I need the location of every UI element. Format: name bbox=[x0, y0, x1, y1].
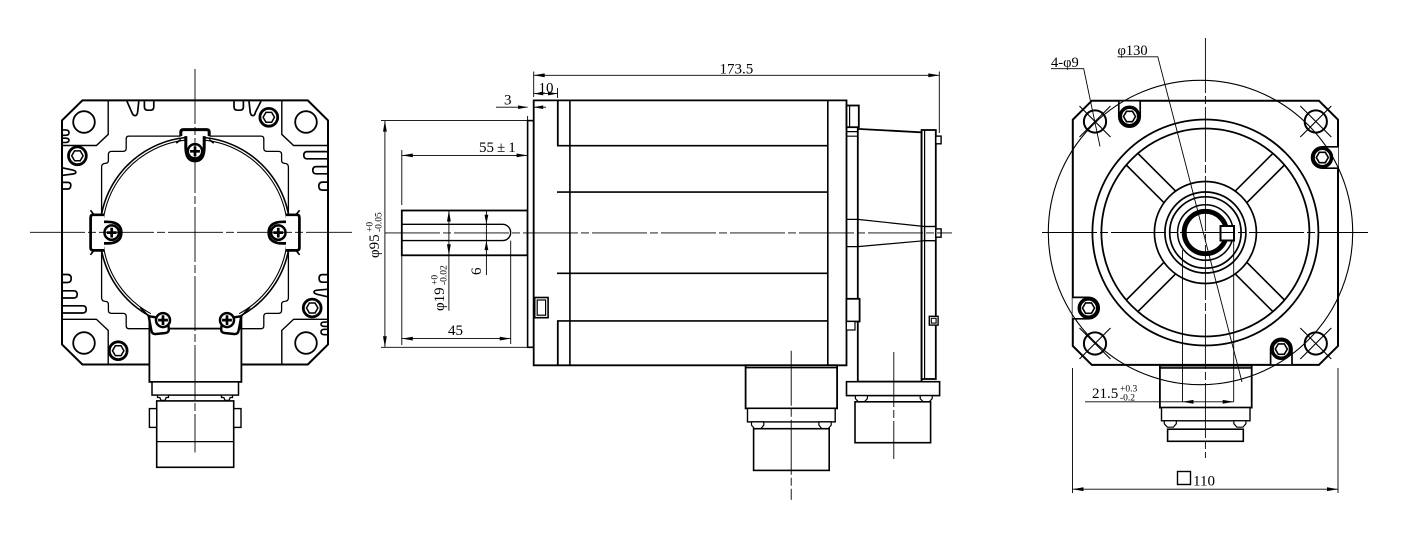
svg-text:45: 45 bbox=[448, 323, 463, 339]
svg-text:3: 3 bbox=[504, 93, 512, 109]
svg-text:173.5: 173.5 bbox=[720, 62, 754, 78]
svg-text:-0.05: -0.05 bbox=[375, 212, 385, 232]
svg-text:21.5: 21.5 bbox=[1092, 386, 1118, 402]
svg-text:10: 10 bbox=[539, 80, 554, 96]
svg-text:φ19: φ19 bbox=[432, 287, 448, 311]
svg-text:110: 110 bbox=[1193, 474, 1215, 490]
svg-text:-0.02: -0.02 bbox=[440, 265, 450, 285]
svg-text:φ95: φ95 bbox=[367, 234, 383, 258]
svg-text:-0.2: -0.2 bbox=[1120, 394, 1135, 404]
svg-text:6: 6 bbox=[469, 267, 485, 275]
svg-text:55 ± 1: 55 ± 1 bbox=[479, 140, 516, 156]
